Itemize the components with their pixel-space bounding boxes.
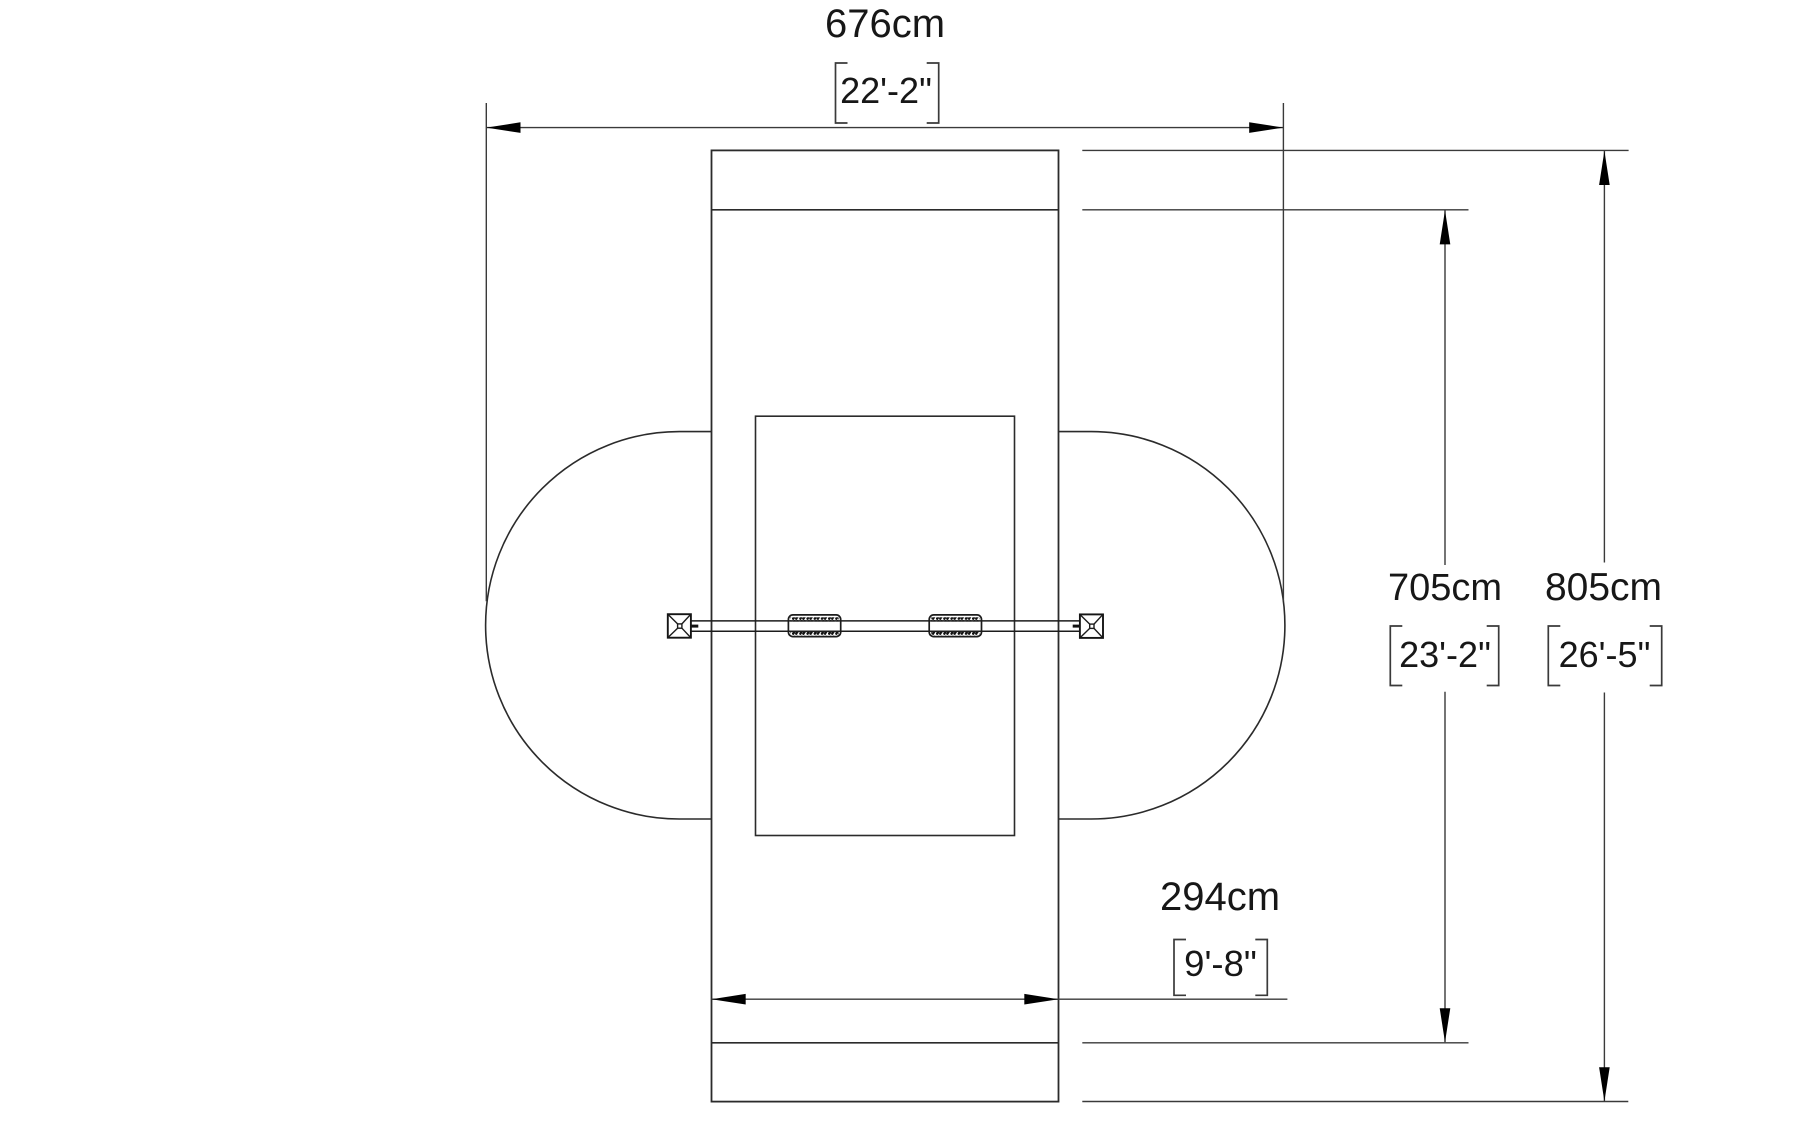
svg-text:23'-2": 23'-2" (1399, 634, 1491, 675)
svg-text:805cm: 805cm (1545, 566, 1662, 609)
svg-text:9'-8": 9'-8" (1184, 943, 1257, 984)
svg-text:705cm: 705cm (1388, 567, 1502, 609)
svg-text:26'-5": 26'-5" (1559, 634, 1651, 675)
svg-text:294cm: 294cm (1160, 875, 1280, 919)
svg-text:22'-2": 22'-2" (840, 70, 932, 111)
svg-text:676cm: 676cm (825, 2, 945, 46)
